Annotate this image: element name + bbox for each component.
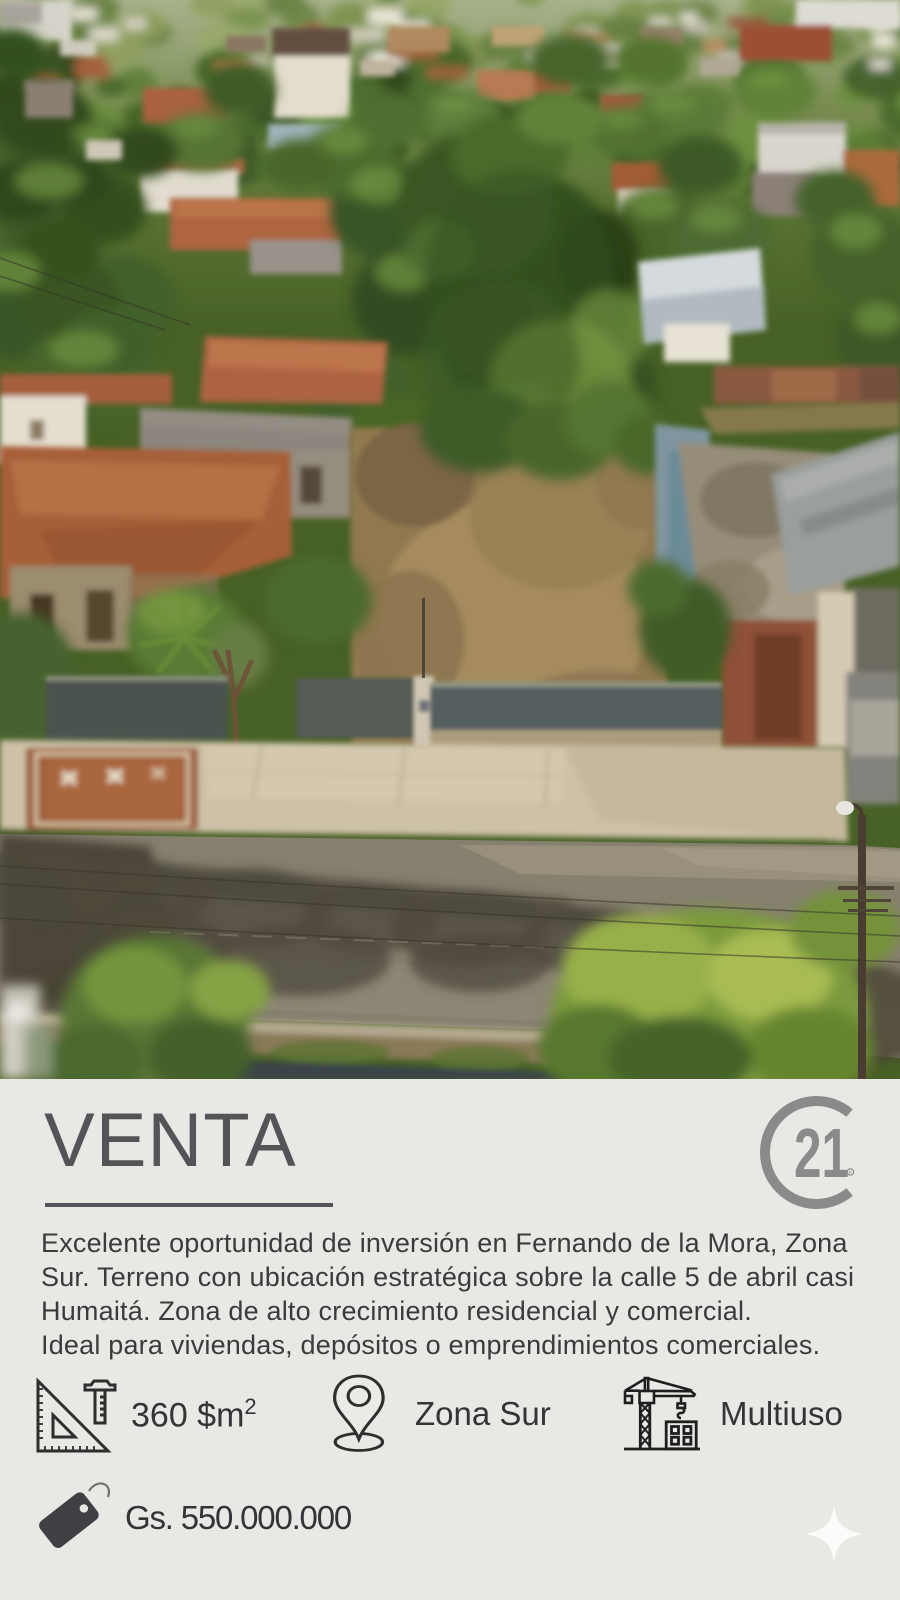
svg-text:21: 21 bbox=[794, 1114, 849, 1192]
